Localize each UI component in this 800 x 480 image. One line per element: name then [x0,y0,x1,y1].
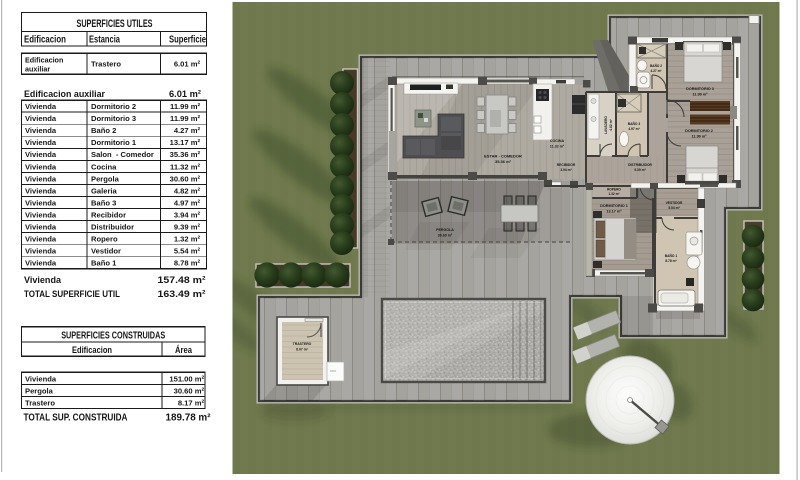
svg-text:3.94 m²: 3.94 m² [560,168,572,172]
svg-text:DORMITORIO 1: DORMITORIO 1 [600,204,628,208]
svg-text:8.17 m²: 8.17 m² [178,399,205,408]
svg-text:Área: Área [175,345,193,356]
svg-text:189.78 m²: 189.78 m² [166,412,211,424]
svg-text:5.54 m²: 5.54 m² [668,206,680,210]
svg-text:8.78 m²: 8.78 m² [174,259,201,268]
svg-text:151.00 m²: 151.00 m² [169,374,204,383]
svg-text:Vivienda: Vivienda [25,211,57,220]
svg-text:TRASTERO: TRASTERO [293,342,312,346]
svg-text:11.99 m²: 11.99 m² [692,135,708,139]
svg-text:Dormitorio 3: Dormitorio 3 [91,114,136,123]
svg-text:BAÑO 2: BAÑO 2 [650,63,662,68]
svg-text:Vivienda: Vivienda [25,247,57,256]
svg-text:11.99 m²: 11.99 m² [170,102,200,111]
svg-text:Vivienda: Vivienda [25,235,57,244]
svg-text:3.94 m²: 3.94 m² [174,211,201,220]
svg-text:Cocina: Cocina [91,162,117,171]
svg-text:VESTIDOR: VESTIDOR [666,201,683,205]
svg-text:13.17 m²: 13.17 m² [170,138,201,147]
svg-text:Ropero: Ropero [91,235,118,244]
svg-text:4.82 m²: 4.82 m² [609,118,613,130]
svg-text:Vivienda: Vivienda [25,138,57,147]
svg-text:Baño 1: Baño 1 [91,259,117,268]
svg-text:DISTRIBUIDOR: DISTRIBUIDOR [628,163,652,167]
svg-text:1.32 m²: 1.32 m² [174,235,201,244]
svg-text:RECIBIDOR: RECIBIDOR [557,163,576,167]
svg-text:13.17 m²: 13.17 m² [606,210,622,214]
svg-text:Vivienda: Vivienda [24,275,62,286]
svg-text:Baño 2: Baño 2 [91,126,116,135]
svg-text:11.32 m²: 11.32 m² [170,162,200,171]
svg-text:Baño 3: Baño 3 [91,198,116,207]
svg-text:Edificacion: Edificacion [24,35,66,46]
svg-text:BAÑO 3: BAÑO 3 [628,121,641,126]
svg-text:Vivienda: Vivienda [25,186,57,195]
svg-text:Estancia: Estancia [89,35,120,46]
svg-text:Vivienda: Vivienda [25,102,57,111]
svg-text:35.36 m²: 35.36 m² [170,150,201,159]
svg-text:Trastero: Trastero [91,60,121,69]
svg-text:Vivienda: Vivienda [25,114,57,123]
svg-text:SUPERFICIES CONSTRUIDAS: SUPERFICIES CONSTRUIDAS [61,330,165,342]
svg-text:LAVADERO: LAVADERO [604,116,608,134]
svg-text:Vivienda: Vivienda [25,198,57,207]
svg-text:Recibidor: Recibidor [91,211,126,220]
svg-text:163.49 m²: 163.49 m² [158,289,206,300]
svg-text:Edificacion: Edificacion [25,56,63,65]
svg-text:COCINA: COCINA [550,139,565,143]
svg-text:Pergola: Pergola [91,174,120,183]
svg-text:auxiliar: auxiliar [25,65,50,74]
svg-text:Dormitorio 2: Dormitorio 2 [91,102,136,111]
svg-text:9.39 m²: 9.39 m² [174,223,201,232]
svg-text:11.32 m²: 11.32 m² [550,145,565,149]
svg-text:Vivienda: Vivienda [25,162,57,171]
svg-text:BAÑO 1: BAÑO 1 [665,253,678,258]
svg-text:Galeria: Galeria [91,186,118,195]
svg-text:Dormitorio 1: Dormitorio 1 [91,138,137,147]
svg-text:Vivienda: Vivienda [25,374,57,383]
svg-text:Vivienda: Vivienda [25,223,57,232]
svg-text:4.97 m²: 4.97 m² [628,127,640,131]
svg-text:Vivienda: Vivienda [25,150,57,159]
svg-text:Vivienda: Vivienda [25,126,57,135]
svg-text:Edificacion auxiliar: Edificacion auxiliar [24,89,105,100]
svg-text:Superficie: Superficie [169,35,206,46]
svg-text:TOTAL SUPERFICIE UTIL: TOTAL SUPERFICIE UTIL [24,289,120,300]
svg-text:Salon - Comedor: Salon - Comedor [91,150,154,159]
svg-text:Pergola: Pergola [25,386,54,395]
svg-text:Vivienda: Vivienda [25,259,57,268]
svg-text:DORMITORIO 3: DORMITORIO 3 [686,87,714,91]
svg-text:ESTAR - COMEDOR: ESTAR - COMEDOR [484,154,522,159]
svg-text:30.60 m²: 30.60 m² [438,234,453,238]
svg-text:Edificacion: Edificacion [72,345,112,356]
svg-text:5.54 m²: 5.54 m² [174,247,201,256]
svg-text:30.60 m²: 30.60 m² [174,386,205,395]
svg-text:1.32 m²: 1.32 m² [609,192,620,196]
svg-text:6.01 m²: 6.01 m² [174,60,201,69]
svg-text:Distribuidor: Distribuidor [91,223,134,232]
svg-text:Vivienda: Vivienda [25,174,57,183]
svg-text:ROPERO: ROPERO [607,188,621,192]
svg-text:DORMITORIO 2: DORMITORIO 2 [685,129,713,133]
svg-text:TOTAL SUP. CONSTRUIDA: TOTAL SUP. CONSTRUIDA [24,412,128,424]
svg-text:Vestidor: Vestidor [91,247,121,256]
svg-text:11.99 m²: 11.99 m² [170,114,200,123]
svg-text:PERGOLA: PERGOLA [436,228,454,232]
svg-text:SUPERFICIES UTILES: SUPERFICIES UTILES [77,18,153,30]
svg-text:157.48 m²: 157.48 m² [158,275,206,286]
svg-text:Trastero: Trastero [25,399,55,408]
svg-text:11.99 m²: 11.99 m² [693,93,709,97]
svg-text:30.60 m²: 30.60 m² [170,174,201,183]
svg-text:4.82 m²: 4.82 m² [174,186,201,195]
svg-text:8.78 m²: 8.78 m² [665,259,677,263]
svg-text:4.97 m²: 4.97 m² [174,198,201,207]
svg-text:4.27 m²: 4.27 m² [174,126,201,135]
svg-text:35.36 m²: 35.36 m² [495,159,512,164]
svg-text:9.39 m²: 9.39 m² [634,168,646,172]
svg-text:8.07 m²: 8.07 m² [296,348,309,352]
svg-text:6.01 m²: 6.01 m² [169,89,201,100]
svg-text:4.27 m²: 4.27 m² [651,69,662,73]
